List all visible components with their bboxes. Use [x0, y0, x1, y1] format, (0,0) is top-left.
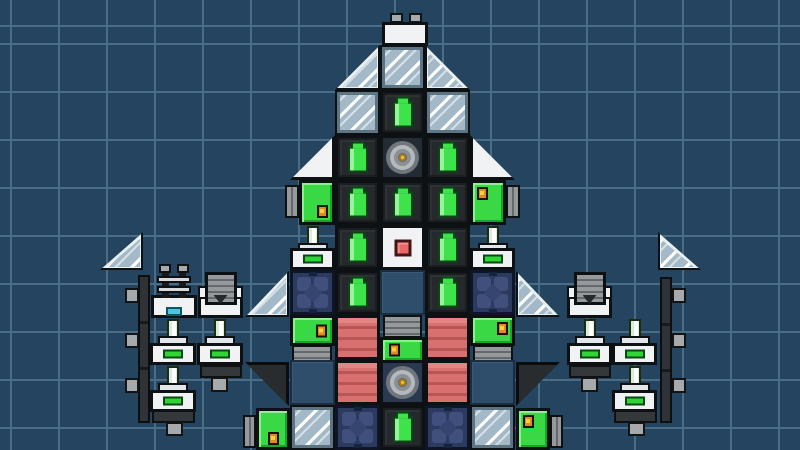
power-dot-icon [268, 432, 279, 445]
power-dot-icon [389, 344, 400, 357]
indicator-light [163, 397, 183, 406]
connector-nub[interactable] [125, 378, 139, 393]
indicator-light [210, 350, 230, 359]
gyroscope-block[interactable] [380, 360, 425, 405]
glass-armor-block[interactable] [290, 405, 335, 450]
vent-radiator-block[interactable] [243, 415, 256, 448]
connector-nub[interactable] [125, 333, 139, 348]
connector-nub[interactable] [125, 288, 139, 303]
hull-wedge-block[interactable] [470, 135, 515, 180]
battery-icon [393, 101, 413, 127]
armor-notch [309, 309, 317, 313]
vent-radiator-block[interactable] [383, 315, 422, 338]
glass-armor-block[interactable] [335, 90, 380, 135]
strip-joint [140, 321, 148, 324]
battery-block[interactable] [335, 135, 380, 180]
connector-nub[interactable] [672, 288, 686, 303]
glass-wedge-block[interactable] [335, 45, 380, 90]
armor-notch [444, 407, 452, 411]
piston-thruster-block[interactable] [150, 318, 196, 365]
energy-cell-block[interactable] [290, 315, 335, 346]
cyan-slot [166, 307, 182, 316]
glass-wedge-block[interactable] [425, 45, 470, 90]
piston-thruster-block[interactable] [470, 225, 515, 270]
post-cap [159, 264, 171, 273]
connector-nub[interactable] [581, 377, 598, 392]
power-dot-icon [497, 322, 508, 335]
build-grid-background[interactable] [0, 0, 800, 450]
hull-cap-block[interactable] [382, 22, 428, 46]
energy-cell-block[interactable] [470, 180, 506, 225]
connector-nub[interactable] [166, 422, 183, 436]
battery-block[interactable] [425, 180, 470, 225]
piston-thruster-block[interactable] [197, 318, 243, 365]
post-cap [177, 264, 189, 273]
armor-notch [444, 444, 452, 448]
battery-block[interactable] [335, 270, 380, 315]
dark-wedge-block[interactable] [245, 362, 289, 406]
armor-notch [309, 272, 317, 276]
battery-block[interactable] [380, 180, 425, 225]
battery-block[interactable] [335, 225, 380, 270]
darktri-fill [248, 365, 286, 403]
indicator-light [580, 350, 600, 359]
piston-base [150, 343, 196, 365]
rail-bar [157, 276, 191, 283]
red-armor-block[interactable] [425, 315, 470, 360]
hull-plate-block[interactable] [470, 360, 515, 405]
battery-icon [438, 146, 458, 172]
battery-block[interactable] [425, 225, 470, 270]
battery-icon [438, 281, 458, 307]
battery-icon [438, 236, 458, 262]
whitetri-fill [473, 138, 512, 177]
core-red-icon [394, 239, 411, 256]
strip-joint [662, 323, 670, 326]
glass-armor-block[interactable] [380, 45, 425, 90]
darktri-fill [519, 365, 557, 403]
red-armor-block[interactable] [335, 360, 380, 405]
navy-armor-block[interactable] [470, 270, 515, 315]
glass-wedge-block[interactable] [100, 232, 143, 270]
battery-block[interactable] [380, 405, 425, 450]
indicator-light [303, 255, 323, 264]
piston-thruster-block[interactable] [612, 318, 657, 365]
red-armor-block[interactable] [335, 315, 380, 360]
piston-base [197, 343, 243, 365]
indicator-light [163, 350, 183, 359]
vent-radiator-block[interactable] [550, 415, 563, 448]
connector-nub[interactable] [672, 333, 686, 348]
indicator-light [483, 255, 503, 264]
piston-thruster-block[interactable] [567, 318, 612, 365]
piston-thruster-block[interactable] [290, 225, 335, 270]
energy-cell-block[interactable] [256, 408, 290, 450]
strip-joint [140, 367, 148, 370]
energy-cell-block[interactable] [299, 180, 335, 225]
armor-notch [489, 309, 497, 313]
side-armor-strip[interactable] [660, 277, 672, 423]
piston-base [290, 248, 335, 270]
energy-cell-block[interactable] [516, 408, 550, 450]
battery-block[interactable] [425, 270, 470, 315]
gyro-core-icon [399, 379, 406, 386]
rail-bar [157, 286, 191, 293]
navy-armor-block[interactable] [290, 270, 335, 315]
piston-base [150, 390, 196, 412]
strip-joint [662, 369, 670, 372]
vent-radiator-block[interactable] [506, 185, 520, 218]
red-armor-block[interactable] [425, 360, 470, 405]
side-armor-strip[interactable] [138, 275, 150, 423]
battery-icon [393, 191, 413, 217]
piston-base [470, 248, 515, 270]
connector-nub[interactable] [672, 378, 686, 393]
battery-icon [438, 191, 458, 217]
battery-icon [348, 191, 368, 217]
connector-nub[interactable] [211, 377, 228, 392]
battery-icon [348, 146, 368, 172]
glass-wedge-block[interactable] [658, 232, 701, 270]
piston-base [612, 343, 657, 365]
navy-armor-block[interactable] [425, 405, 470, 450]
piston-thruster-block[interactable] [612, 365, 657, 412]
indicator-light [625, 397, 645, 406]
armor-notch [489, 272, 497, 276]
battery-block[interactable] [380, 90, 425, 135]
armor-notch [354, 407, 362, 411]
whitetri-fill [293, 138, 332, 177]
power-dot-icon [317, 205, 328, 218]
battery-icon [348, 281, 368, 307]
glass-wedge-block[interactable] [245, 271, 289, 317]
nozzle-thruster-block[interactable] [567, 272, 612, 318]
glass-fill [428, 52, 463, 87]
power-dot-icon [316, 324, 327, 337]
piston-base [612, 390, 657, 412]
vent-radiator-block[interactable] [285, 185, 299, 218]
hull-wedge-block[interactable] [290, 135, 335, 180]
control-core-block[interactable] [380, 225, 425, 270]
gyro-core-icon [399, 154, 406, 161]
battery-icon [393, 416, 413, 442]
armor-notch [354, 444, 362, 448]
piston-thruster-block[interactable] [150, 365, 196, 412]
hull-plate-block[interactable] [290, 360, 335, 405]
power-dot-icon [477, 187, 488, 200]
battery-block[interactable] [335, 180, 380, 225]
dark-wedge-block[interactable] [516, 362, 560, 406]
nozzle-thruster-block[interactable] [198, 272, 243, 318]
glass-fill [342, 52, 377, 87]
battery-icon [348, 236, 368, 262]
power-dot-icon [523, 415, 534, 428]
antenna-rail-block[interactable] [151, 264, 197, 318]
hull-plate-block[interactable] [380, 270, 425, 315]
glass-wedge-block[interactable] [516, 271, 560, 317]
navy-armor-block[interactable] [335, 405, 380, 450]
battery-block[interactable] [425, 135, 470, 180]
energy-cell-block[interactable] [470, 315, 515, 346]
indicator-light [625, 350, 645, 359]
glass-armor-block[interactable] [425, 90, 470, 135]
gyroscope-block[interactable] [380, 135, 425, 180]
connector-nub[interactable] [628, 422, 645, 436]
piston-base [567, 343, 612, 365]
glass-armor-block[interactable] [470, 405, 515, 450]
